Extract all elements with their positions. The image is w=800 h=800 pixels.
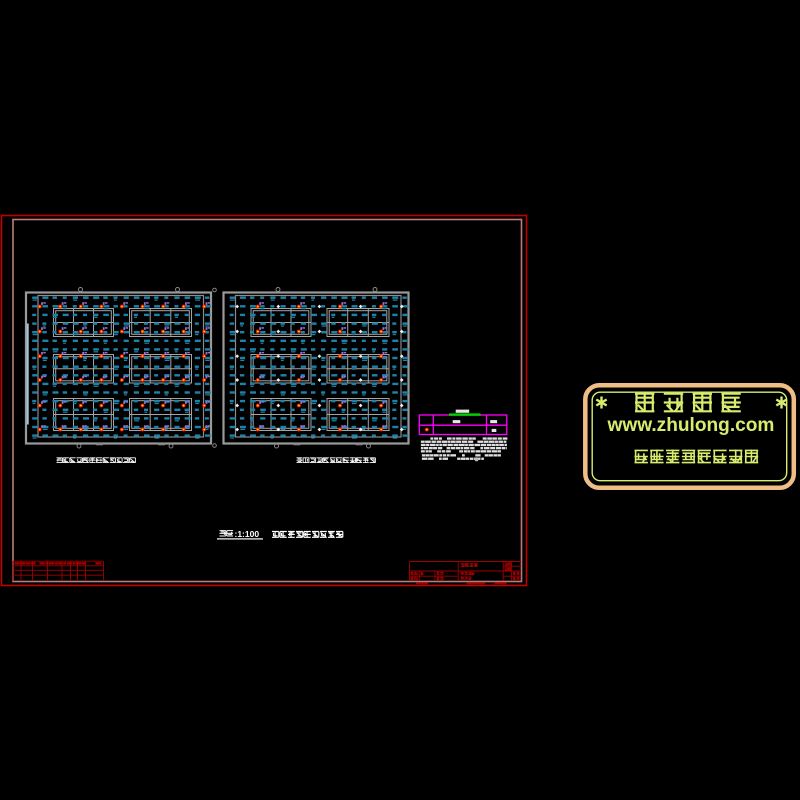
svg-text::1:100: :1:100 [235, 529, 260, 539]
svg-text:www.zhulong.com: www.zhulong.com [607, 415, 775, 436]
